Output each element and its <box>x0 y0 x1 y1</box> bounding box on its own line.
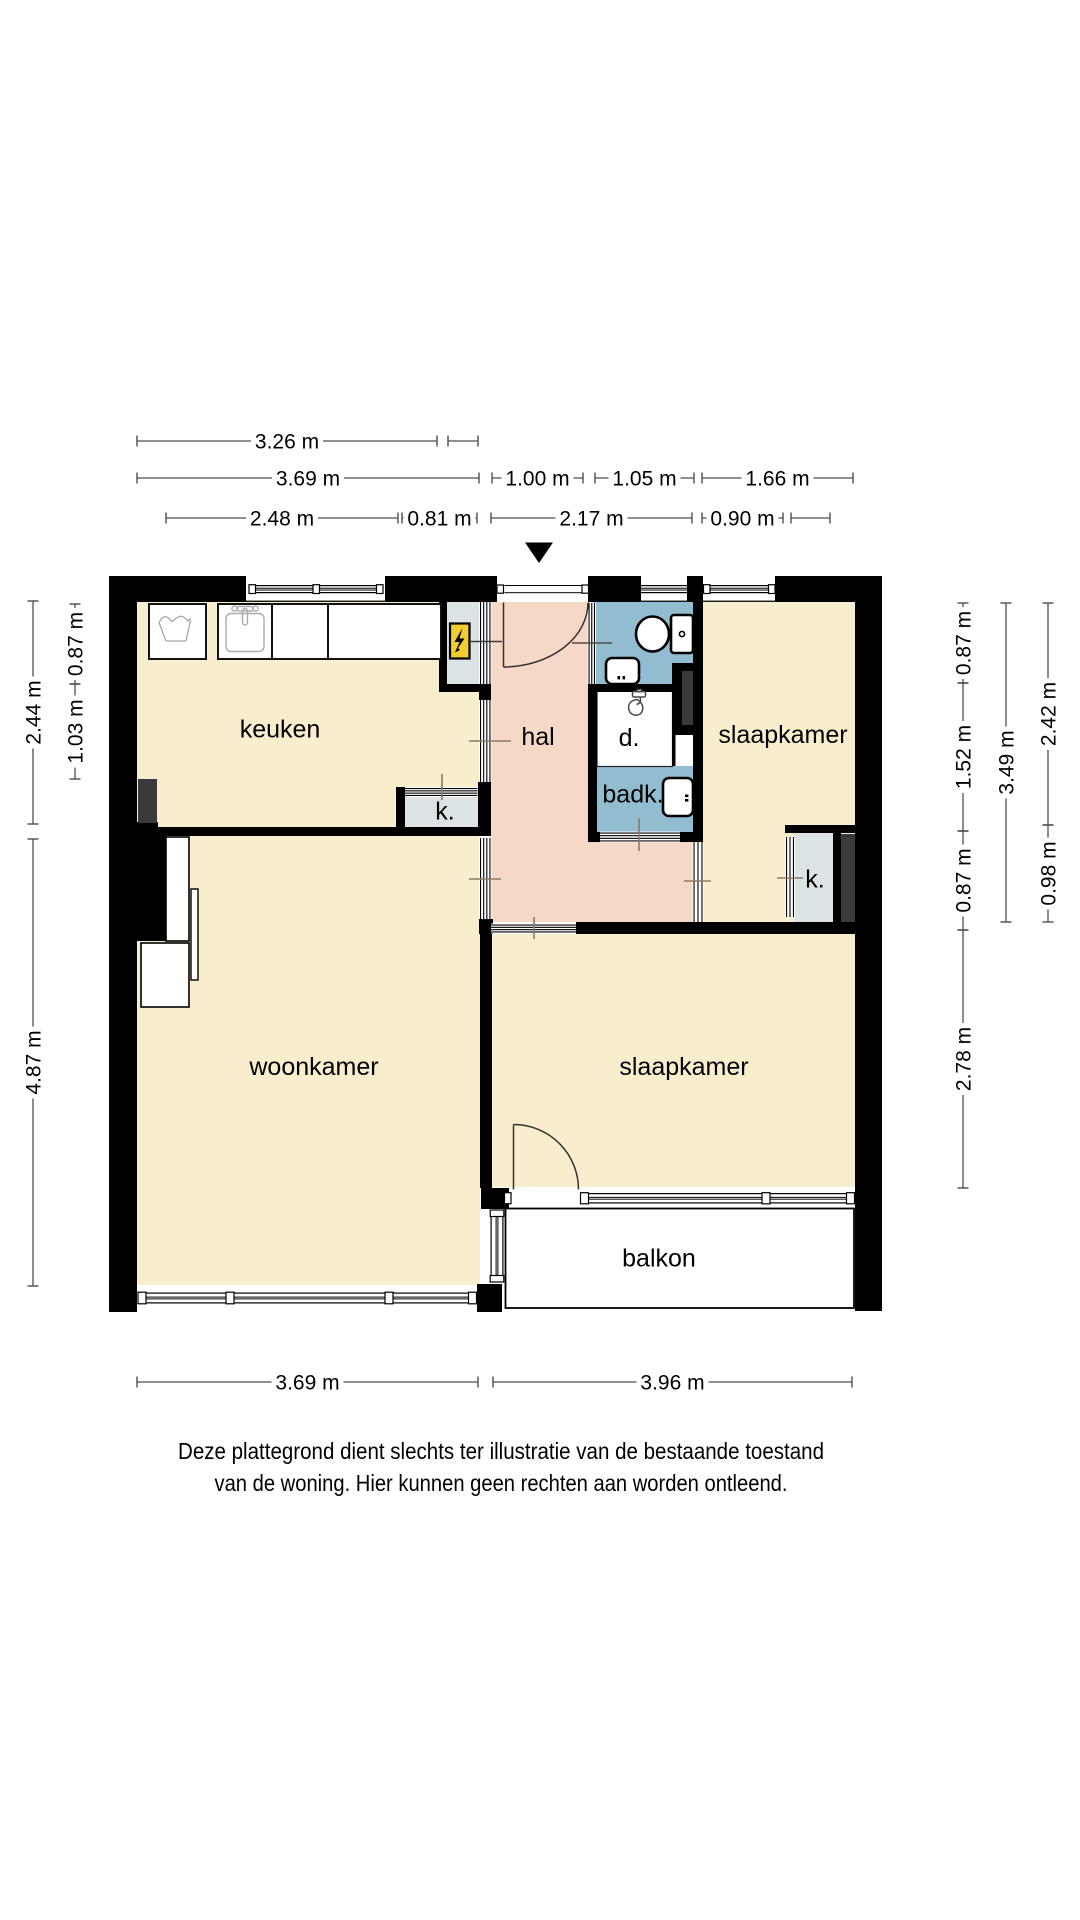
svg-text:k.: k. <box>805 866 824 894</box>
svg-text:0.81 m: 0.81 m <box>407 507 471 530</box>
svg-text:0.87 m: 0.87 m <box>952 848 975 912</box>
svg-text:1.03 m: 1.03 m <box>64 699 87 763</box>
svg-text:balkon: balkon <box>622 1245 696 1273</box>
svg-text:0.87 m: 0.87 m <box>952 611 975 675</box>
svg-text:2.78 m: 2.78 m <box>952 1027 975 1091</box>
svg-text:k.: k. <box>435 798 454 826</box>
svg-text:2.44 m: 2.44 m <box>22 680 45 744</box>
svg-text:3.49 m: 3.49 m <box>995 730 1018 794</box>
svg-text:2.48 m: 2.48 m <box>250 507 314 530</box>
svg-text:van de woning. Hier kunnen gee: van de woning. Hier kunnen geen rechten … <box>215 1470 788 1496</box>
svg-text:0.87 m: 0.87 m <box>64 612 87 676</box>
svg-text:d.: d. <box>619 724 640 752</box>
svg-text:1.05 m: 1.05 m <box>612 467 676 490</box>
svg-text:3.69 m: 3.69 m <box>275 1371 339 1394</box>
svg-text:2.17 m: 2.17 m <box>559 507 623 530</box>
svg-text:3.69 m: 3.69 m <box>276 467 340 490</box>
svg-text:1.52 m: 1.52 m <box>952 725 975 789</box>
svg-text:0.90 m: 0.90 m <box>710 507 774 530</box>
svg-text:badk.: badk. <box>602 781 663 809</box>
svg-text:2.42 m: 2.42 m <box>1037 682 1060 746</box>
svg-text:0.98 m: 0.98 m <box>1037 841 1060 905</box>
svg-text:3.96 m: 3.96 m <box>640 1371 704 1394</box>
svg-text:4.87 m: 4.87 m <box>22 1030 45 1094</box>
svg-text:3.26 m: 3.26 m <box>255 430 319 453</box>
svg-text:slaapkamer: slaapkamer <box>619 1053 748 1081</box>
svg-text:Deze plattegrond dient slechts: Deze plattegrond dient slechts ter illus… <box>178 1438 824 1464</box>
svg-text:keuken: keuken <box>240 716 321 744</box>
svg-text:woonkamer: woonkamer <box>248 1053 378 1081</box>
svg-text:hal: hal <box>521 723 554 751</box>
svg-text:slaapkamer: slaapkamer <box>718 721 847 749</box>
svg-text:1.66 m: 1.66 m <box>745 467 809 490</box>
svg-text:1.00 m: 1.00 m <box>505 467 569 490</box>
